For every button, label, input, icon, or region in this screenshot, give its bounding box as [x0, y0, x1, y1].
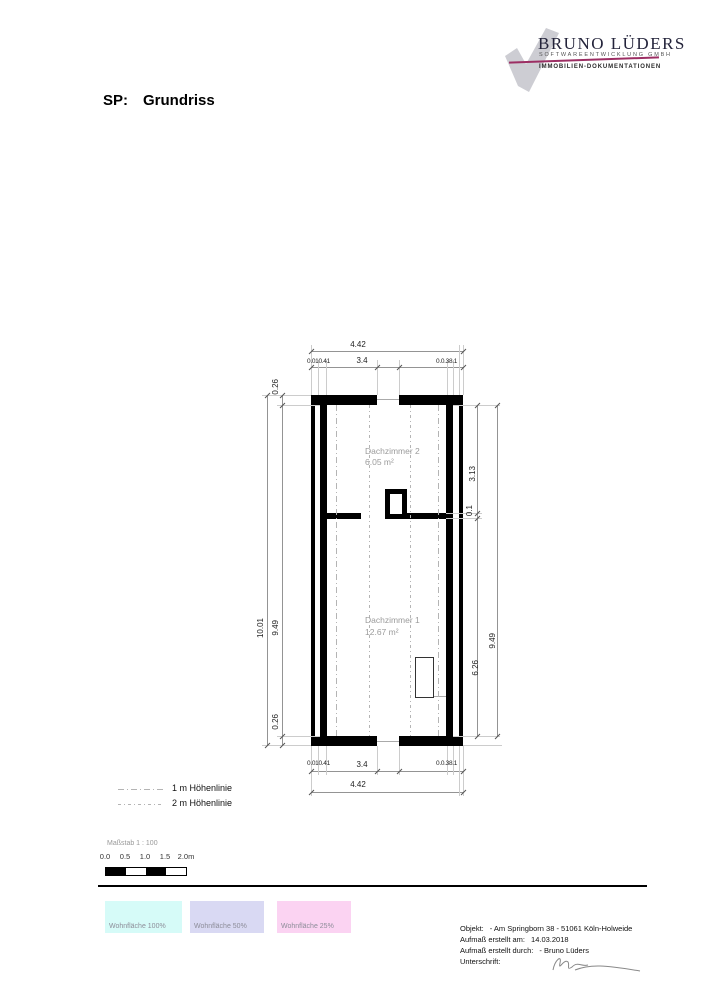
legend-label-1m: 1 m Höhenlinie [172, 783, 232, 793]
dim-right-mid: 0.1 [465, 505, 474, 516]
wall-top-right [399, 395, 463, 405]
scale-bar-seg [146, 868, 166, 875]
footer-objekt-label: Objekt: [460, 923, 484, 934]
signature [545, 948, 645, 980]
dim-right-lower: 6.26 [471, 660, 480, 676]
footer-durch-label: Aufmaß erstellt durch: [460, 945, 533, 956]
legend-label-2m: 2 m Höhenlinie [172, 798, 232, 808]
page-title-prefix: SP: [103, 92, 128, 109]
footer-row-objekt: Objekt:- Am Springborn 38 - 51061 Köln-H… [460, 923, 632, 934]
scale-tick-3: 1.5 [155, 852, 175, 861]
height-line-1m-right [438, 405, 439, 736]
page-title-text: Grundriss [143, 92, 215, 109]
dim-bottom-right-cluster: 0.0.38.1 [436, 759, 457, 768]
wall-right-outer [459, 395, 463, 746]
wall-left-inner [320, 405, 327, 736]
roof-window-line [434, 696, 446, 697]
wohnflaeche-50-swatch: Wohnfläche 50% [190, 901, 264, 933]
scale-tick-0: 0.0 [95, 852, 115, 861]
chimney-block [385, 489, 407, 514]
wohnflaeche-25-label: Wohnfläche 25% [281, 923, 334, 930]
wall-bottom-right [399, 736, 463, 746]
document-page: BRUNO LÜDERS SOFTWAREENTWICKLUNG GMBH IM… [0, 0, 706, 1000]
dim-line-bottom-total [311, 792, 463, 793]
scale-bar-seg [126, 868, 146, 875]
dim-line-bottom-inner [311, 771, 463, 772]
scale-bar-seg [166, 868, 186, 875]
scale-tick-1: 0.5 [115, 852, 135, 861]
room-2-area: 6.05 m² [365, 457, 394, 468]
footer-am-value: 14.03.2018 [531, 935, 569, 944]
room-2-name: Dachzimmer 2 [365, 446, 420, 457]
window-sill-top [377, 399, 399, 400]
dim-left-bottom-offset: 0.26 [271, 714, 280, 730]
dim-bottom-total: 4.42 [338, 780, 378, 789]
dim-ext [262, 395, 311, 396]
dim-ext [262, 745, 311, 746]
dim-line-top-inner [311, 367, 463, 368]
scale-bar-seg [106, 868, 126, 875]
wall-right-inner [446, 405, 453, 736]
wohnflaeche-100-swatch: Wohnfläche 100% [105, 901, 182, 933]
room-1-name: Dachzimmer 1 [365, 615, 420, 626]
dim-line-right-inner [477, 405, 478, 736]
logo-company-name: BRUNO LÜDERS [538, 34, 686, 54]
dim-line-left-total [267, 395, 268, 746]
wall-partition-left [327, 513, 361, 519]
dim-ext [459, 746, 460, 796]
legend-line-1m [118, 789, 164, 790]
height-line-1m-left [336, 405, 337, 736]
scale-tick-2: 1.0 [135, 852, 155, 861]
dim-right-total: 9.49 [488, 633, 497, 649]
wohnflaeche-25-swatch: Wohnfläche 25% [277, 901, 351, 933]
dim-top-total: 4.42 [338, 340, 378, 349]
wall-left-outer [311, 395, 315, 746]
footer-am-label: Aufmaß erstellt am: [460, 934, 525, 945]
legend-line-2m [118, 804, 164, 805]
window-sill-bottom [377, 741, 399, 742]
wall-top-left [311, 395, 377, 405]
dim-ext [463, 745, 502, 746]
dim-top-left-cluster: 0.010.41 [307, 357, 330, 366]
roof-window [415, 657, 434, 698]
footer-unterschrift-label: Unterschrift: [460, 956, 500, 967]
wohnflaeche-100-label: Wohnfläche 100% [109, 923, 166, 930]
dim-left-inner: 9.49 [271, 620, 280, 636]
footer-row-aufmass-am: Aufmaß erstellt am:14.03.2018 [460, 934, 632, 945]
wall-bottom-left [311, 736, 377, 746]
footer-objekt-value: - Am Springborn 38 - 51061 Köln-Holweide [490, 924, 633, 933]
dim-left-total: 10.01 [256, 618, 265, 638]
dim-right-upper: 3.13 [468, 466, 477, 482]
footer-divider [98, 885, 647, 887]
dim-line-top-total [311, 351, 463, 352]
scale-bar [105, 867, 187, 876]
logo-tagline: IMMOBILIEN-DOKUMENTATIONEN [539, 64, 661, 70]
page-title: SP: Grundriss [103, 92, 215, 109]
dim-bottom-left-cluster: 0.010.41 [307, 759, 330, 768]
dim-line-right-total [497, 405, 498, 736]
dim-top-right-cluster: 0.0.38.1 [436, 357, 457, 366]
dim-left-top-offset: 0.26 [271, 379, 280, 395]
scale-tick-4: 2.0m [173, 852, 199, 861]
dim-top-inner: 3.4 [347, 356, 377, 365]
dim-bottom-inner: 3.4 [347, 760, 377, 769]
dim-line-left-inner [282, 395, 283, 746]
wohnflaeche-50-label: Wohnfläche 50% [194, 923, 247, 930]
scale-label: Maßstab 1 : 100 [107, 840, 158, 847]
room-1-area: 12.67 m² [365, 627, 399, 638]
logo-subtitle: SOFTWAREENTWICKLUNG GMBH [539, 52, 672, 58]
